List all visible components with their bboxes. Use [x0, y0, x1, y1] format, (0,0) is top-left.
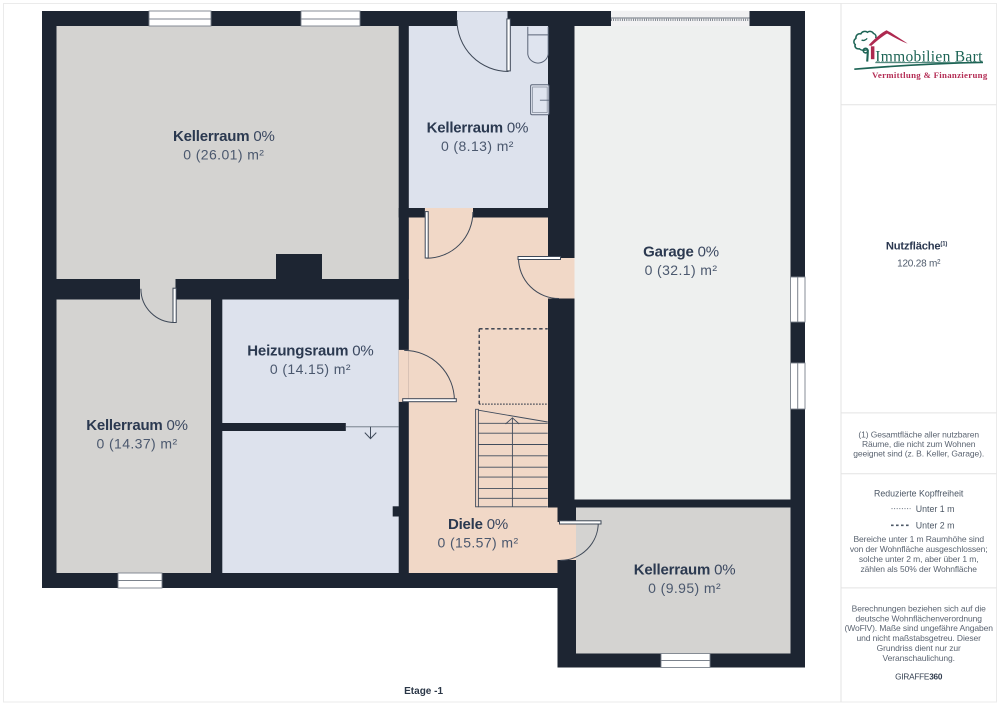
svg-text:120.28 m²: 120.28 m²	[897, 258, 941, 269]
svg-text:Veranschaulichung.: Veranschaulichung.	[882, 653, 954, 663]
svg-text:und nicht maßstabsgetreu. Dies: und nicht maßstabsgetreu. Dieser	[857, 633, 982, 643]
svg-text:von der Wohnfläche ausgeschlos: von der Wohnfläche ausgeschlossen;	[850, 544, 988, 554]
svg-text:Kellerraum 0%: Kellerraum 0%	[86, 417, 188, 434]
svg-text:(WoFlV). Maße sind ungefähre A: (WoFlV). Maße sind ungefähre Angaben	[845, 623, 994, 633]
svg-text:Berechnungen beziehen sich auf: Berechnungen beziehen sich auf die	[852, 604, 986, 614]
svg-text:0 (14.15) m²: 0 (14.15) m²	[270, 361, 351, 377]
svg-text:Kellerraum 0%: Kellerraum 0%	[634, 562, 736, 579]
svg-text:0 (9.95) m²: 0 (9.95) m²	[648, 580, 721, 596]
svg-text:Unter 2 m: Unter 2 m	[916, 521, 955, 531]
svg-text:Bereiche unter 1 m Raumhöhe si: Bereiche unter 1 m Raumhöhe sind	[853, 534, 984, 544]
svg-text:0 (8.13) m²: 0 (8.13) m²	[441, 138, 514, 154]
svg-text:(1) Gesamtfläche aller nutzbar: (1) Gesamtfläche aller nutzbaren	[858, 430, 979, 440]
svg-text:0 (32.1) m²: 0 (32.1) m²	[645, 262, 718, 278]
svg-text:deutsche Wohnflächenverordnung: deutsche Wohnflächenverordnung	[856, 613, 983, 623]
svg-text:Garage 0%: Garage 0%	[643, 243, 719, 260]
svg-text:Etage -1: Etage -1	[404, 686, 443, 697]
svg-text:zählen als 50% der Wohnfläche: zählen als 50% der Wohnfläche	[860, 564, 977, 574]
svg-text:Heizungsraum 0%: Heizungsraum 0%	[247, 342, 373, 359]
svg-text:0 (14.37) m²: 0 (14.37) m²	[96, 436, 177, 452]
svg-text:geeignet sind (z. B. Keller, G: geeignet sind (z. B. Keller, Garage).	[853, 449, 984, 459]
svg-text:Kellerraum 0%: Kellerraum 0%	[427, 119, 529, 136]
svg-text:Nutzfläche(1): Nutzfläche(1)	[886, 241, 948, 253]
svg-text:Reduzierte Kopffreiheit: Reduzierte Kopffreiheit	[874, 488, 964, 498]
svg-text:0 (15.57) m²: 0 (15.57) m²	[437, 535, 518, 551]
svg-text:Vermittlung & Finanzierung: Vermittlung & Finanzierung	[872, 70, 988, 80]
svg-text:solche unter 2 m, aber über 1: solche unter 2 m, aber über 1 m,	[859, 554, 979, 564]
svg-text:Grundriss dient nur zur: Grundriss dient nur zur	[877, 643, 961, 653]
svg-text:Diele 0%: Diele 0%	[448, 516, 508, 533]
svg-text:GIRAFFE360: GIRAFFE360	[895, 673, 943, 682]
svg-text:Kellerraum 0%: Kellerraum 0%	[173, 128, 275, 145]
svg-text:Unter 1 m: Unter 1 m	[916, 504, 955, 514]
svg-text:0 (26.01) m²: 0 (26.01) m²	[183, 147, 264, 163]
